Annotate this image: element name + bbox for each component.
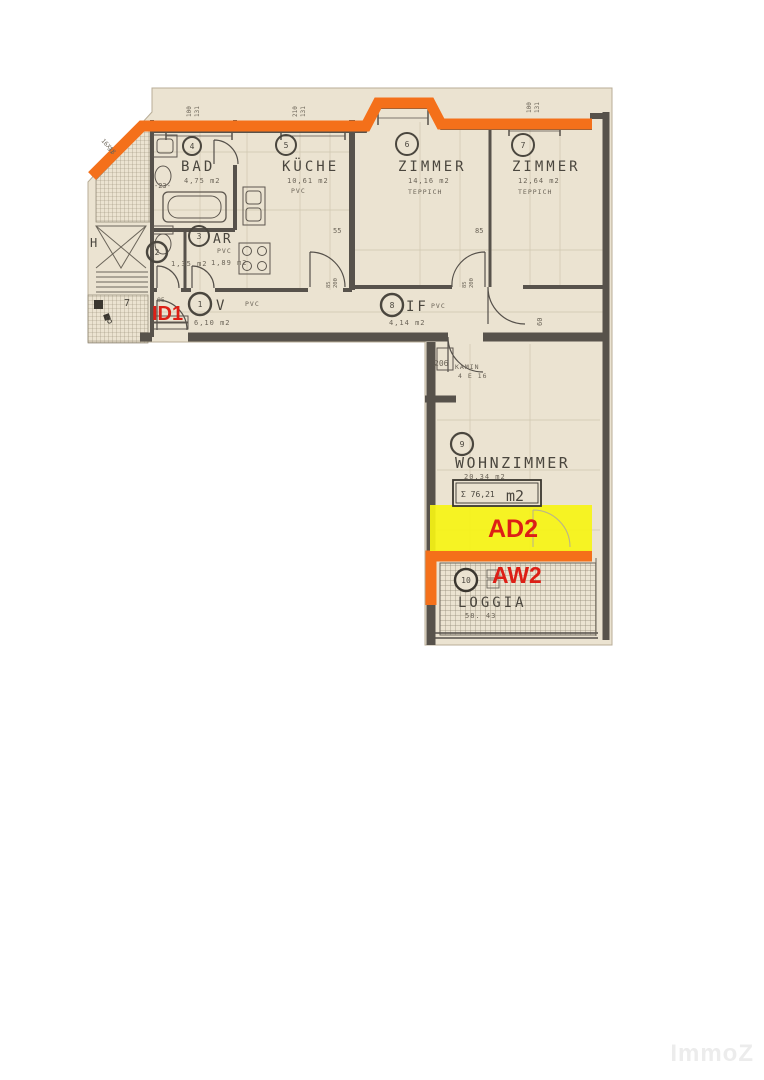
room-name: AR bbox=[213, 232, 233, 247]
kamin-label: 4 E 16 bbox=[458, 372, 487, 380]
plan-mark-7: 7 bbox=[124, 298, 130, 309]
door-dim: 200 bbox=[333, 278, 339, 288]
window-dim: 131 bbox=[534, 102, 541, 113]
room-area: 10,61 m2 bbox=[287, 177, 329, 185]
room-name: WOHNZIMMER bbox=[455, 454, 570, 472]
window-dim: 131 bbox=[194, 106, 201, 117]
kamin-label: KAMIN bbox=[455, 363, 480, 371]
stair-h-label: H bbox=[90, 236, 97, 250]
room-area: 14,16 m2 bbox=[408, 177, 450, 185]
room-number: 3 bbox=[197, 232, 202, 241]
room-number: 9 bbox=[460, 440, 465, 449]
annotation-aw2: AW2 bbox=[492, 562, 542, 588]
room-floor: PVC bbox=[217, 247, 232, 255]
room-floor: TEPPICH bbox=[408, 188, 442, 196]
annotation-id1: ID1 bbox=[152, 303, 183, 325]
total-area-box: Σ 76,21 m2 bbox=[453, 480, 541, 506]
watermark: ImmoZ bbox=[670, 1040, 754, 1068]
room-name: KÜCHE bbox=[282, 157, 339, 175]
floor-plan-page: 4 BAD 4,75 m2 5 KÜCHE 10,61 m2 PVC 6 ZIM… bbox=[0, 0, 764, 1080]
room-name: BAD bbox=[181, 159, 215, 175]
door-dim: 85 bbox=[326, 281, 332, 288]
room-number: 1 bbox=[198, 300, 203, 309]
annotation-ad2: AD2 bbox=[488, 515, 538, 543]
window-dim: 100 bbox=[526, 102, 533, 113]
room-number: 5 bbox=[284, 141, 289, 150]
floor-plan-drawing: 4 BAD 4,75 m2 5 KÜCHE 10,61 m2 PVC 6 ZIM… bbox=[0, 0, 764, 1080]
room-floor: PVC bbox=[245, 300, 260, 308]
plan-mark-square bbox=[94, 300, 103, 309]
room-floor: PVC bbox=[431, 302, 446, 310]
dim-85: 85 bbox=[475, 227, 483, 235]
room-area: 1,35 m2 bbox=[171, 260, 208, 268]
room-floor: TEPPICH bbox=[518, 188, 552, 196]
total-area-value: Σ 76,21 bbox=[461, 490, 495, 499]
dim-206: 206 bbox=[434, 359, 449, 368]
room-number: 4 bbox=[190, 142, 195, 151]
room-name: ZIMMER bbox=[512, 159, 581, 175]
room-floor: PVC bbox=[291, 187, 306, 195]
dim-60: 60 bbox=[536, 318, 544, 326]
window-dim: 210 bbox=[292, 106, 299, 117]
room-name: LOGGIA bbox=[458, 595, 527, 611]
door-dim: 200 bbox=[469, 278, 475, 288]
dim-55: 55 bbox=[333, 227, 341, 235]
room-name: IF bbox=[406, 299, 429, 315]
room-number: 6 bbox=[405, 140, 410, 149]
dim-23: -23- bbox=[154, 182, 171, 190]
room-name: ZIMMER bbox=[398, 159, 467, 175]
room-area: 4,75 m2 bbox=[184, 177, 221, 185]
room-area: 12,64 m2 bbox=[518, 177, 560, 185]
room-name: V bbox=[216, 298, 227, 314]
door-dim: 85 bbox=[462, 281, 468, 288]
room-number: 8 bbox=[390, 301, 395, 310]
room-area: 6,10 m2 bbox=[194, 319, 231, 327]
room-area: 4,14 m2 bbox=[389, 319, 426, 327]
room-number: 2 bbox=[155, 248, 160, 257]
room-number: 7 bbox=[521, 141, 526, 150]
room-number: 10 bbox=[461, 576, 471, 585]
window-dim: 100 bbox=[186, 106, 193, 117]
window-dim: 131 bbox=[300, 106, 307, 117]
room-area: 58. 43 bbox=[465, 612, 496, 620]
room-area: 1,89 m2 bbox=[211, 259, 248, 267]
total-area-unit: m2 bbox=[506, 487, 524, 505]
